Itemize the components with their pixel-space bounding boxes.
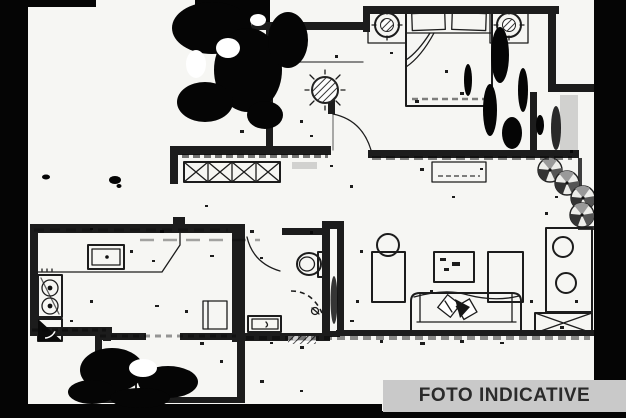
potted-plant-icon bbox=[305, 70, 345, 110]
banner-label: FOTO INDICATIVE bbox=[419, 385, 590, 407]
floor-plan-drawing bbox=[0, 0, 626, 418]
floor-plan-scan: FOTO INDICATIVE bbox=[0, 0, 626, 418]
photo-indicative-banner: FOTO INDICATIVE bbox=[383, 380, 626, 412]
